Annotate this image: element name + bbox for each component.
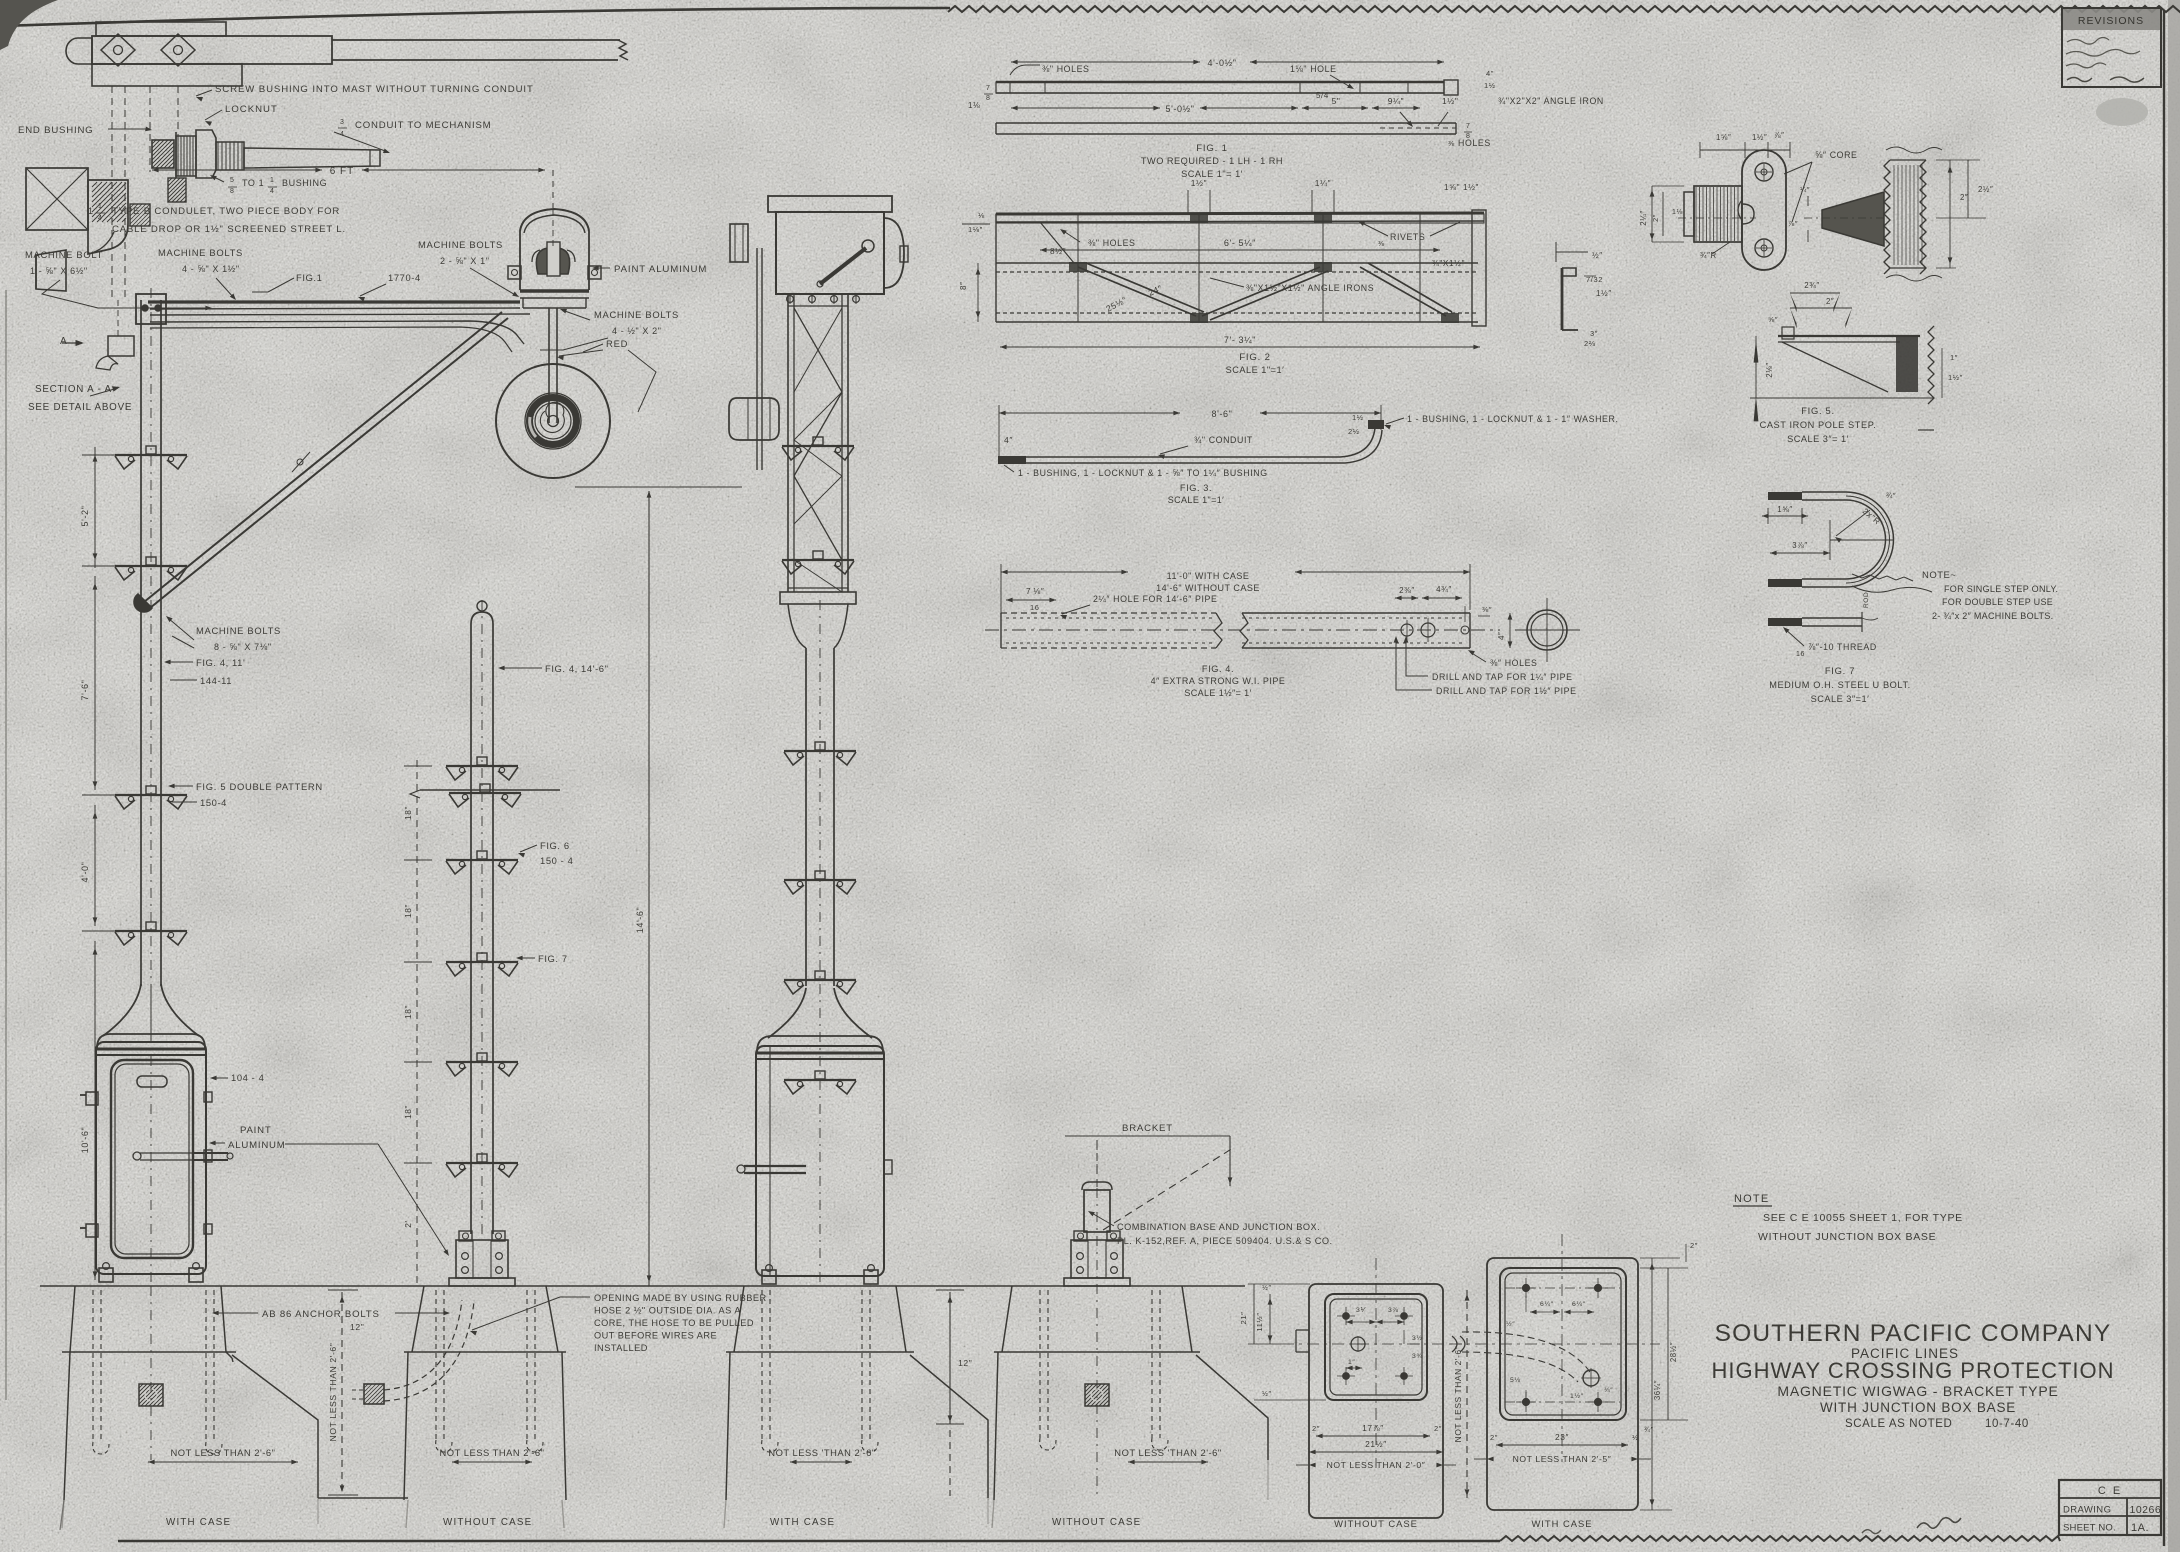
svg-text:PL. K-152,REF. A, PIECE 509404: PL. K-152,REF. A, PIECE 509404. U.S.& S … (1117, 1236, 1333, 1246)
svg-text:1 - ⅝" X 6½": 1 - ⅝" X 6½" (30, 266, 88, 276)
svg-text:21½″: 21½″ (1365, 1439, 1387, 1449)
svg-text:BUSHING: BUSHING (282, 178, 327, 188)
svg-text:SHEET NO.: SHEET NO. (2063, 1523, 2116, 1534)
svg-text:BRACKET: BRACKET (1122, 1123, 1173, 1134)
svg-text:END BUSHING: END BUSHING (18, 125, 93, 136)
svg-text:2″: 2″ (1434, 1424, 1442, 1433)
svg-text:SCALE 3″= 1′: SCALE 3″= 1′ (1787, 434, 1849, 444)
svg-text:C E: C E (2098, 1485, 2122, 1497)
svg-text:AB 86 ANCHOR BOLTS: AB 86 ANCHOR BOLTS (262, 1309, 380, 1320)
svg-text:2- ¾″x 2″ MACHINE BOLTS.: 2- ¾″x 2″ MACHINE BOLTS. (1932, 611, 2053, 621)
svg-text:NOT LESS THAN 2'-6″: NOT LESS THAN 2'-6″ (1453, 1346, 1463, 1443)
svg-text:18": 18" (403, 904, 413, 918)
svg-text:SEE DETAIL ABOVE: SEE DETAIL ABOVE (28, 402, 132, 413)
svg-text:FIG. 7: FIG. 7 (538, 953, 568, 964)
svg-text:¾″: ¾″ (1604, 1387, 1613, 1394)
svg-text:WITHOUT CASE: WITHOUT CASE (1052, 1517, 1141, 1528)
svg-text:CORE, THE HOSE TO BE PULLED: CORE, THE HOSE TO BE PULLED (594, 1318, 754, 1328)
svg-text:FIG. 1: FIG. 1 (1196, 143, 1227, 154)
svg-text:6'- 5¼": 6'- 5¼" (1224, 238, 1256, 248)
svg-text:2″: 2″ (1651, 214, 1660, 222)
svg-text:5": 5" (1332, 96, 1341, 106)
svg-text:SOUTHERN PACIFIC COMPANY: SOUTHERN PACIFIC COMPANY (1715, 1320, 2112, 1347)
svg-text:⅞″: ⅞″ (1774, 131, 1784, 140)
svg-text:1770-4: 1770-4 (388, 272, 421, 283)
svg-text:SCALE 3″=1′: SCALE 3″=1′ (1811, 694, 1870, 704)
svg-text:1½": 1½" (1442, 96, 1458, 106)
svg-text:2¼″: 2¼″ (1639, 210, 1648, 225)
svg-text:WITH CASE: WITH CASE (166, 1517, 231, 1528)
svg-text:1⅛" HOLE: 1⅛" HOLE (1290, 64, 1337, 74)
svg-text:2″: 2″ (1690, 1241, 1698, 1250)
svg-text:WITHOUT CASE: WITHOUT CASE (443, 1517, 532, 1528)
svg-text:11½″: 11½″ (1255, 1312, 1264, 1331)
svg-text:2′: 2′ (403, 1220, 413, 1227)
svg-text:8'-6": 8'-6" (1212, 409, 1233, 419)
svg-text:¾"X2"X2" ANGLE IRON: ¾"X2"X2" ANGLE IRON (1498, 96, 1604, 106)
svg-text:3⅟: 3⅟ (1356, 1307, 1366, 1314)
svg-text:NOT LESS 'THAN 2'-6": NOT LESS 'THAN 2'-6" (1114, 1447, 1221, 1458)
svg-text:8½": 8½" (1050, 247, 1066, 256)
svg-text:5'-2": 5'-2" (80, 506, 90, 527)
svg-text:28½″: 28½″ (1669, 1342, 1678, 1362)
svg-text:14'-6" WITHOUT CASE: 14'-6" WITHOUT CASE (1156, 583, 1260, 593)
svg-text:8: 8 (230, 188, 235, 195)
svg-text:MEDIUM O.H. STEEL U BOLT.: MEDIUM O.H. STEEL U BOLT. (1769, 680, 1911, 690)
svg-text:4": 4" (1486, 69, 1494, 78)
svg-text:NOT LESS 'THAN 2'-6": NOT LESS 'THAN 2'-6" (768, 1447, 875, 1458)
svg-text:NOT LESS THAN 2'-6": NOT LESS THAN 2'-6" (171, 1447, 276, 1458)
svg-text:LOCKNUT: LOCKNUT (225, 104, 278, 115)
svg-text:18": 18" (403, 1005, 413, 1019)
svg-text:104 - 4: 104 - 4 (231, 1072, 264, 1083)
svg-text:FIG. 7: FIG. 7 (1825, 665, 1855, 676)
svg-text:1″: 1″ (1348, 1359, 1355, 1366)
svg-text:3⅞″: 3⅞″ (1792, 541, 1807, 550)
svg-text:RED: RED (606, 338, 628, 349)
svg-text:⅜" HOLES: ⅜" HOLES (1042, 64, 1090, 74)
svg-text:2″: 2″ (1826, 297, 1834, 306)
svg-text:1⅛: 1⅛ (968, 101, 980, 110)
svg-text:8″: 8″ (959, 282, 968, 290)
svg-text:14'-6": 14'-6" (635, 907, 645, 934)
svg-text:150 - 4: 150 - 4 (540, 855, 573, 866)
svg-text:5/4: 5/4 (1316, 91, 1329, 100)
svg-text:7: 7 (986, 85, 991, 92)
svg-text:FIG. 2: FIG. 2 (1239, 352, 1270, 363)
svg-text:⅞″: ⅞″ (1788, 219, 1798, 228)
svg-text:½″: ½″ (1592, 251, 1603, 260)
svg-text:8 - ⅝" X 7⅛": 8 - ⅝" X 7⅛" (214, 642, 272, 652)
svg-text:CONDUIT TO MECHANISM: CONDUIT TO MECHANISM (355, 120, 491, 131)
svg-text:144-11: 144-11 (200, 675, 232, 686)
svg-text:½″: ½″ (1506, 1320, 1515, 1328)
svg-text:4'-0½": 4'-0½" (1207, 58, 1236, 68)
svg-text:WITH CASE: WITH CASE (1531, 1518, 1592, 1529)
svg-text:MAGNETIC WIGWAG - BRACKET TY: MAGNETIC WIGWAG - BRACKET TYPE (1777, 1383, 2058, 1399)
svg-text:FIG. 3.: FIG. 3. (1180, 483, 1212, 493)
svg-text:23″: 23″ (1555, 1432, 1569, 1442)
svg-text:1: 1 (98, 203, 103, 210)
svg-text:5⅛: 5⅛ (1510, 1377, 1521, 1384)
svg-text:SCALE AS NOTED: SCALE AS NOTED (1845, 1418, 1952, 1430)
svg-text:1 - BUSHING, 1 - LOCKNUT & 1 -: 1 - BUSHING, 1 - LOCKNUT & 1 - 1″ WASHER… (1407, 414, 1619, 424)
svg-text:⅞″-10 THREAD: ⅞″-10 THREAD (1808, 642, 1877, 652)
svg-text:NOTE~: NOTE~ (1922, 570, 1956, 581)
svg-text:16: 16 (1030, 603, 1040, 612)
svg-text:18": 18" (403, 806, 413, 820)
svg-text:1″: 1″ (1950, 353, 1958, 362)
svg-text:OPENING MADE BY USING RUBBER: OPENING MADE BY USING RUBBER (594, 1293, 767, 1303)
svg-text:8: 8 (1466, 133, 1471, 140)
svg-text:OUT BEFORE WIRES ARE: OUT BEFORE WIRES ARE (594, 1331, 717, 1341)
svg-text:1½″: 1½″ (1596, 289, 1612, 298)
svg-text:4¾″: 4¾″ (1436, 585, 1452, 594)
svg-text:1: 1 (270, 177, 275, 184)
svg-text:DRILL AND TAP FOR 1½″ PIPE: DRILL AND TAP FOR 1½″ PIPE (1436, 686, 1577, 696)
svg-text:INSTALLED: INSTALLED (594, 1343, 648, 1353)
svg-text:7'- 3¼": 7'- 3¼" (1224, 335, 1256, 345)
svg-text:CAST IRON POLE STEP.: CAST IRON POLE STEP. (1760, 420, 1877, 430)
svg-text:150-4: 150-4 (200, 797, 227, 808)
svg-text:1⅝" 1½": 1⅝" 1½" (1444, 183, 1479, 192)
svg-text:MACHINE BOLTS: MACHINE BOLTS (158, 247, 243, 258)
svg-text:ALUMINUM: ALUMINUM (228, 1140, 286, 1151)
svg-text:36¼″: 36¼″ (1653, 1380, 1662, 1400)
svg-text:10-7-40: 10-7-40 (1985, 1418, 2029, 1430)
svg-text:HOSE 2 ½" OUTSIDE DIA. AS A: HOSE 2 ½" OUTSIDE DIA. AS A (594, 1306, 741, 1316)
svg-text:4″ EXTRA STRONG W.I. PIPE: 4″ EXTRA STRONG W.I. PIPE (1151, 676, 1286, 686)
svg-text:1: 1 (88, 206, 94, 216)
svg-text:TO 1: TO 1 (242, 178, 264, 188)
svg-text:2⅔: 2⅔ (1584, 339, 1596, 348)
svg-text:17⅞″: 17⅞″ (1362, 1423, 1384, 1433)
svg-text:7: 7 (1466, 123, 1471, 130)
svg-text:12": 12" (350, 1322, 364, 1332)
svg-text:TWO REQUIRED - 1 LH - 1 RH: TWO REQUIRED - 1 LH - 1 RH (1141, 156, 1283, 166)
svg-text:NOTE: NOTE (1734, 1193, 1769, 1205)
svg-text:4 - ½" X 2": 4 - ½" X 2" (612, 326, 662, 336)
svg-text:MACHINE BOLTS: MACHINE BOLTS (196, 625, 281, 636)
svg-text:12": 12" (958, 1358, 972, 1368)
svg-text:FOR SINGLE STEP ONLY.: FOR SINGLE STEP ONLY. (1944, 584, 2058, 594)
svg-text:FIG. 5 DOUBLE PATTERN: FIG. 5 DOUBLE PATTERN (196, 781, 323, 792)
svg-text:FIG. 4, 11': FIG. 4, 11' (196, 657, 245, 668)
svg-text:1⅝″: 1⅝″ (1777, 505, 1792, 514)
svg-text:HIGHWAY CROSSING PROTECTION: HIGHWAY CROSSING PROTECTION (1711, 1358, 2114, 1383)
svg-text:SCREW BUSHING INTO MAST WITHOU: SCREW BUSHING INTO MAST WITHOUT TURNING … (215, 84, 534, 95)
svg-text:4 - ⅝" X 1½": 4 - ⅝" X 1½" (182, 264, 240, 274)
svg-text:8: 8 (986, 95, 991, 102)
svg-text:1 - BUSHING, 1 - LOCKNUT & 1 -: 1 - BUSHING, 1 - LOCKNUT & 1 - ⅝″ TO 1¼″… (1018, 468, 1268, 478)
svg-text:PAINT: PAINT (240, 1125, 272, 1136)
svg-text:1⅛″: 1⅛″ (968, 225, 983, 234)
svg-text:2⅛″: 2⅛″ (1765, 362, 1774, 377)
svg-text:18": 18" (403, 1105, 413, 1119)
svg-text:1½: 1½ (1484, 81, 1496, 90)
svg-text:WITHOUT JUNCTION BOX BASE: WITHOUT JUNCTION BOX BASE (1758, 1231, 1936, 1243)
svg-text:7 ⅛″: 7 ⅛″ (1026, 587, 1044, 596)
svg-text:DRAWING: DRAWING (2063, 1505, 2111, 1516)
svg-text:1½": 1½" (1191, 178, 1207, 188)
svg-text:3⅞: 3⅞ (1388, 1307, 1399, 1314)
svg-text:SCALE 1"=1′: SCALE 1"=1′ (1226, 365, 1285, 375)
svg-text:11'-0" WITH CASE: 11'-0" WITH CASE (1167, 571, 1250, 581)
svg-text:3¾: 3¾ (1412, 1353, 1423, 1360)
svg-text:⅝″: ⅝″ (1768, 315, 1778, 324)
svg-text:2″: 2″ (1960, 193, 1968, 202)
svg-text:4″: 4″ (1497, 632, 1506, 640)
svg-text:⅜"X1½"X1½" ANGLE IRONS: ⅜"X1½"X1½" ANGLE IRONS (1246, 283, 1374, 293)
svg-text:2½: 2½ (1348, 427, 1360, 436)
svg-text:⅜: ⅜ (1378, 241, 1384, 248)
svg-text:WITH JUNCTION BOX BASE: WITH JUNCTION BOX BASE (1820, 1400, 2016, 1415)
svg-text:⅜: ⅜ (1448, 139, 1455, 148)
svg-text:RIVETS: RIVETS (1390, 232, 1425, 242)
svg-text:1⅛: 1⅛ (1672, 209, 1683, 216)
svg-text:CABLE DROP OR 1½" SCREENED STR: CABLE DROP OR 1½" SCREENED STREET L. (112, 224, 346, 235)
svg-text:⅜″: ⅜″ (1482, 605, 1492, 614)
svg-text:FIG.1: FIG.1 (296, 272, 322, 283)
svg-text:⅛: ⅛ (978, 211, 985, 220)
svg-text:¾″: ¾″ (1886, 491, 1896, 500)
svg-text:¼″: ¼″ (1800, 185, 1810, 194)
svg-text:ROD: ROD (1863, 592, 1870, 608)
svg-text:REVISIONS: REVISIONS (2078, 15, 2144, 27)
svg-text:5: 5 (230, 177, 235, 184)
svg-text:SEE C E 10055 SHEET 1, FOR T: SEE C E 10055 SHEET 1, FOR TYPE (1763, 1212, 1963, 1224)
svg-text:2⅜″: 2⅜″ (1399, 586, 1415, 595)
svg-text:3: 3 (340, 119, 345, 126)
svg-text:21″: 21″ (1239, 1312, 1248, 1325)
svg-text:FIG. 6: FIG. 6 (540, 840, 570, 851)
svg-text:3″: 3″ (1590, 329, 1598, 338)
svg-text:9¼": 9¼" (1388, 96, 1404, 106)
svg-text:⅜″ HOLES: ⅜″ HOLES (1490, 658, 1538, 668)
svg-text:FIG. 4, 14'-6": FIG. 4, 14'-6" (545, 663, 609, 674)
svg-text:4″: 4″ (1004, 435, 1013, 445)
svg-text:MACHINE BOLTS: MACHINE BOLTS (418, 239, 503, 250)
svg-text:10266: 10266 (2130, 1504, 2162, 1516)
svg-text:1½″: 1½″ (1752, 133, 1767, 142)
svg-text:1A.: 1A. (2131, 1522, 2149, 1534)
svg-text:1½: 1½ (1352, 413, 1364, 422)
svg-text:PAINT ALUMINUM: PAINT ALUMINUM (614, 264, 707, 275)
svg-text:SCALE 1½″= 1′: SCALE 1½″= 1′ (1184, 688, 1251, 698)
svg-text:WITHOUT CASE: WITHOUT CASE (1334, 1518, 1418, 1529)
svg-text:1⅝″: 1⅝″ (1716, 133, 1731, 142)
svg-text:SCALE 1"=1′: SCALE 1"=1′ (1168, 495, 1225, 505)
svg-text:2½″: 2½″ (1978, 185, 1993, 194)
svg-text:2″: 2″ (1312, 1424, 1320, 1433)
svg-text:4: 4 (270, 188, 275, 195)
svg-text:1¼": 1¼" (1315, 178, 1331, 188)
svg-text:NOT LESS THAN 2'-6": NOT LESS THAN 2'-6" (440, 1447, 545, 1458)
svg-text:NOT LESS THAN 2'-6": NOT LESS THAN 2'-6" (328, 1343, 338, 1442)
svg-text:⅜" HOLES: ⅜" HOLES (1088, 238, 1136, 248)
svg-text:¾"X1½": ¾"X1½" (1432, 259, 1465, 268)
svg-text:3½: 3½ (1412, 1334, 1423, 1342)
svg-text:NOT LESS THAN 2'-0″: NOT LESS THAN 2'-0″ (1327, 1460, 1426, 1470)
svg-text:2″: 2″ (1490, 1433, 1498, 1442)
svg-text:4'-0": 4'-0" (80, 862, 90, 883)
svg-text:16: 16 (1796, 651, 1805, 658)
svg-text:NOT LESS THAN 2'-5″: NOT LESS THAN 2'-5″ (1513, 1454, 1612, 1464)
svg-text:7'-6": 7'-6" (80, 680, 90, 701)
svg-text:2¼″ HOLE FOR 14′-6″ PIPE: 2¼″ HOLE FOR 14′-6″ PIPE (1093, 594, 1217, 604)
svg-text:⅝″ CORE: ⅝″ CORE (1815, 150, 1858, 160)
svg-text:6¼″: 6¼″ (1572, 1301, 1586, 1308)
svg-text:FIG. 5.: FIG. 5. (1801, 405, 1835, 416)
svg-text:FOR DOUBLE STEP USE: FOR DOUBLE STEP USE (1942, 597, 2053, 607)
svg-text:10'-6": 10'-6" (80, 1127, 90, 1154)
svg-text:DRILL AND TAP FOR 1¼″ PIPE: DRILL AND TAP FOR 1¼″ PIPE (1432, 672, 1573, 682)
svg-text:¾″: ¾″ (1644, 1427, 1654, 1434)
svg-text:WITH CASE: WITH CASE (770, 1517, 835, 1528)
svg-text:¾" CONDUIT: ¾" CONDUIT (1194, 435, 1253, 445)
svg-text:COMBINATION BASE AND JUNCTION: COMBINATION BASE AND JUNCTION BOX. (1117, 1222, 1320, 1232)
svg-text:5'-0½": 5'-0½" (1165, 104, 1194, 114)
svg-text:HOLES: HOLES (1458, 138, 1491, 148)
svg-text:½″: ½″ (1262, 1390, 1272, 1398)
svg-text:1½″: 1½″ (1570, 1392, 1584, 1400)
svg-text:1½″: 1½″ (1948, 373, 1963, 382)
svg-text:A: A (60, 336, 67, 347)
svg-text:2¾″: 2¾″ (1804, 281, 1819, 290)
svg-text:2 - ⅝" X 1": 2 - ⅝" X 1" (440, 256, 490, 266)
svg-text:6 FT: 6 FT (330, 166, 355, 177)
svg-text:TYPE B CONDULET, TWO PIECE BO: TYPE B CONDULET, TWO PIECE BODY FOR (112, 206, 340, 217)
svg-text:½″: ½″ (1262, 1284, 1272, 1292)
svg-text:6¼″: 6¼″ (1540, 1301, 1554, 1308)
svg-text:MACHINE BOLTS: MACHINE BOLTS (594, 309, 679, 320)
svg-text:FIG. 4.: FIG. 4. (1202, 664, 1234, 674)
svg-text:4: 4 (98, 215, 103, 222)
svg-text:MACHINE BOLT: MACHINE BOLT (25, 249, 103, 260)
